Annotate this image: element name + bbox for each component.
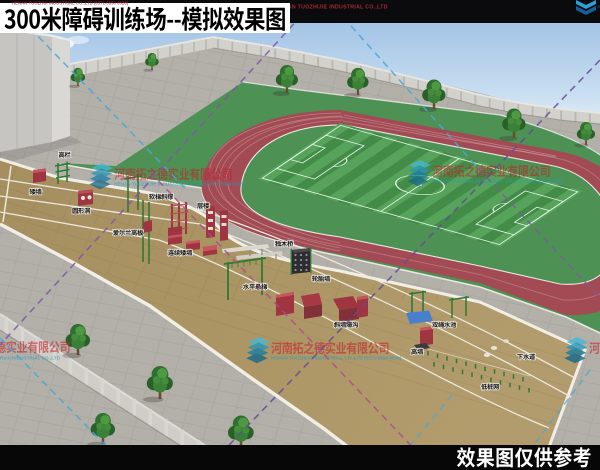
svg-text:HENAN TUOZHIJIE INDUSTRIAL CO.: HENAN TUOZHIJIE INDUSTRIAL CO.,LTD: [276, 5, 388, 11]
svg-text:HENAN TUOZHUI INDUSTRIAL CO.,L: HENAN TUOZHUI INDUSTRIAL CO.,LTD (0371-5…: [12, 1, 129, 6]
svg-text:HENAN TUOZHIJIE INDUSTRIAL CO.: HENAN TUOZHIJIE INDUSTRIAL CO.,LTD (0371…: [114, 182, 245, 187]
svg-text:HENAN TUOZHIJIE INDUSTRIAL CO.: HENAN TUOZHIJIE INDUSTRIAL CO.,LTD (0371…: [432, 179, 563, 184]
svg-text:RUJI INDUSTRIAL CO.,LTD: RUJI INDUSTRIAL CO.,LTD: [0, 356, 61, 361]
svg-text:HENAN TUOZHIJIE INDUSTRIAL CO.: HENAN TUOZHIJIE INDUSTRIAL CO.,LTD (0371…: [271, 356, 402, 361]
